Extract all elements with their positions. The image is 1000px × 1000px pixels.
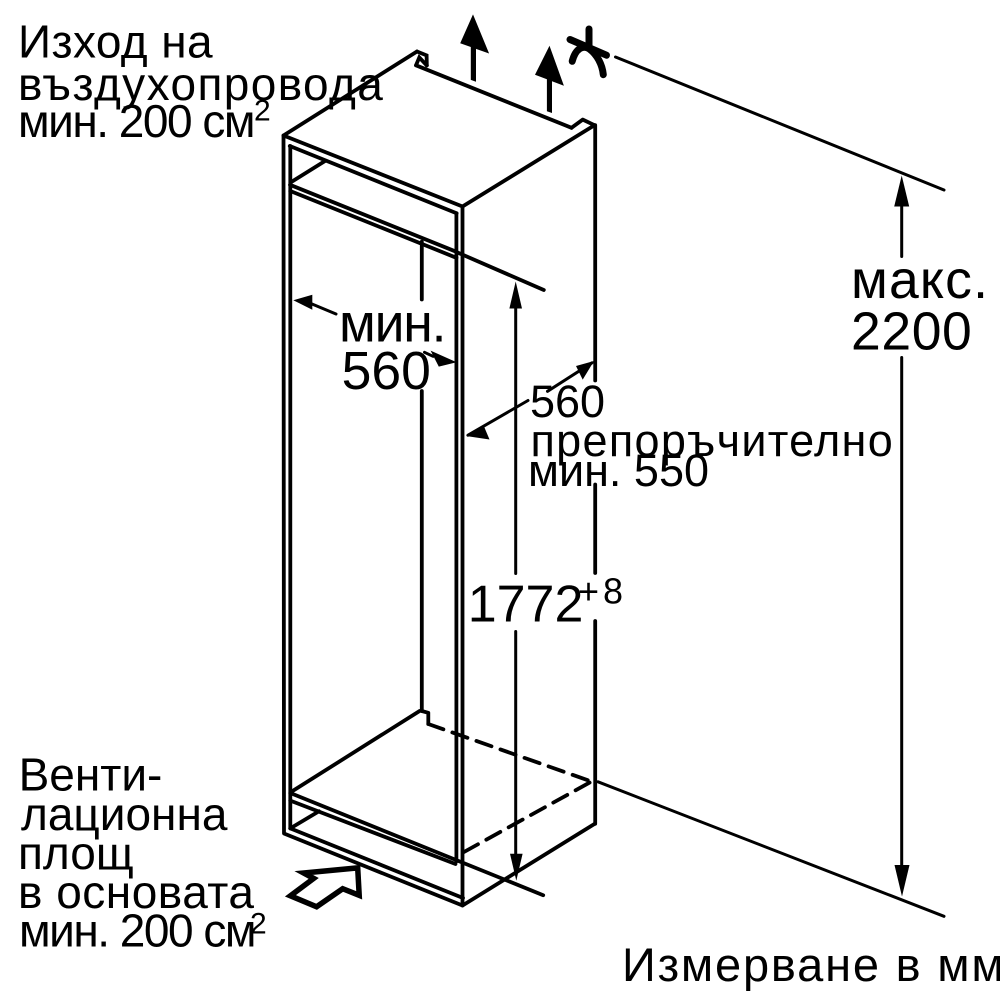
- svg-text:1772: 1772: [468, 576, 584, 634]
- svg-text:макс.: макс.: [851, 251, 989, 310]
- svg-text:мин. 200 см: мин. 200 см: [19, 904, 255, 956]
- svg-text:Измерване в мм: Измерване в мм: [622, 938, 1000, 991]
- svg-text:мин. 550: мин. 550: [528, 445, 709, 496]
- svg-text:+8: +8: [578, 571, 627, 612]
- svg-text:2: 2: [254, 94, 271, 127]
- svg-text:560: 560: [342, 342, 431, 401]
- svg-text:2200: 2200: [851, 302, 972, 361]
- svg-text:мин. 200 см: мин. 200 см: [18, 95, 254, 147]
- svg-text:2: 2: [250, 907, 267, 940]
